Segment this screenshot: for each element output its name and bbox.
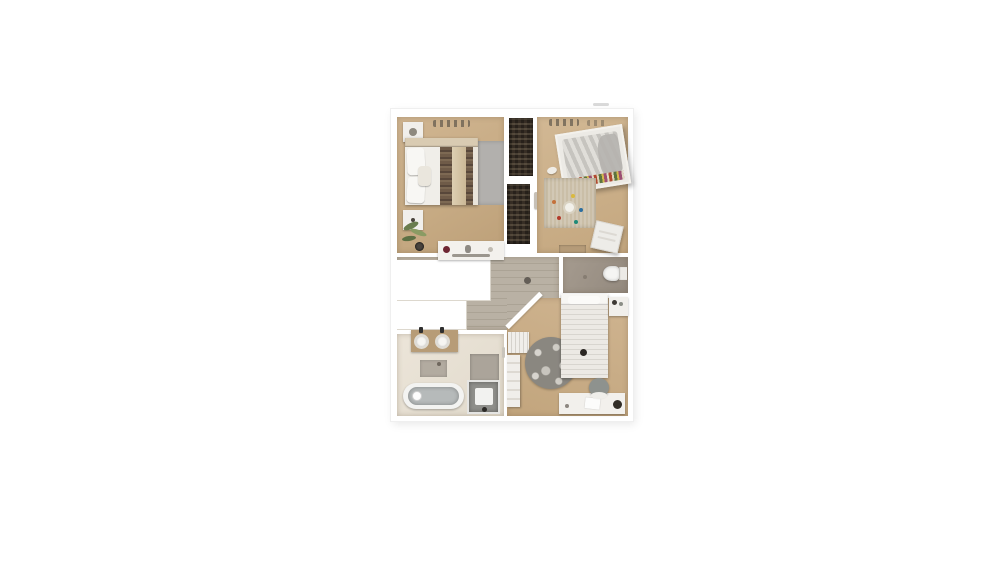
single-bed: [561, 294, 608, 378]
toilet-bowl: [603, 266, 620, 281]
bath-mat: [420, 360, 447, 377]
round-toy: [563, 201, 576, 214]
stair-opening: [397, 260, 491, 301]
bathtub: [403, 383, 464, 409]
desk-chair: [587, 378, 611, 400]
sink-vanity: [411, 330, 458, 352]
sink: [435, 334, 450, 349]
closet-lower: [507, 184, 530, 244]
lamp-icon: [409, 128, 417, 136]
bed-throw-beige: [452, 147, 466, 205]
drawer-line: [452, 254, 490, 257]
floor-plan-image: [391, 109, 633, 421]
bed-pillow: [568, 296, 600, 304]
basket-line: [599, 230, 617, 236]
headboard: [405, 138, 478, 147]
ribbed-duvet: [561, 305, 608, 378]
gray-rug: [475, 141, 504, 205]
sink: [414, 334, 429, 349]
room-bedroom-bottom-right: [507, 298, 628, 416]
leaf: [402, 235, 417, 242]
slipper-pair: [546, 166, 557, 175]
toy-red: [557, 216, 561, 220]
room-bedroom-top-left: [397, 117, 504, 253]
dresser: [438, 241, 504, 260]
red-vase: [443, 246, 450, 253]
bench: [559, 245, 586, 253]
bed-runner-dark: [440, 147, 452, 205]
bathroom-door-handle: [502, 347, 505, 358]
toilet: [603, 266, 627, 281]
shower-side-panel: [470, 354, 499, 381]
plant-pot: [415, 242, 424, 251]
decor-light: [619, 302, 623, 306]
tub-drain: [412, 391, 422, 401]
shower-drain: [482, 407, 487, 412]
desk-lamp: [613, 400, 622, 409]
floor-dot: [583, 275, 587, 279]
chair-backrest: [591, 392, 607, 399]
wall-decor: [587, 120, 607, 126]
stair-opening: [397, 301, 467, 330]
faucet: [440, 327, 444, 333]
play-rug: [544, 178, 596, 228]
gray-decor: [465, 245, 471, 253]
footboard: [473, 147, 478, 205]
faucet: [419, 327, 423, 333]
ceiling-light: [524, 277, 531, 284]
accent-pillow: [418, 166, 431, 186]
double-bed: [405, 138, 478, 205]
basket-line: [598, 236, 616, 242]
storage-basket: [590, 220, 624, 254]
toy-teal: [574, 220, 578, 224]
shower: [467, 380, 500, 414]
desk-item: [565, 404, 569, 408]
room-bathroom: [397, 334, 504, 416]
radiator: [508, 332, 529, 353]
dark-toy: [580, 349, 587, 356]
nightstand: [609, 297, 628, 316]
wall-decor: [549, 119, 579, 126]
small-decor: [488, 247, 493, 252]
page: { "page": { "background_color": "#ffffff…: [0, 0, 1000, 563]
toilet-tank: [619, 267, 627, 280]
decor-dark: [612, 300, 617, 305]
room-wc: [563, 257, 628, 293]
bed-runner-dark: [466, 147, 473, 205]
toy-yellow: [571, 194, 575, 198]
shower-tray: [475, 388, 493, 405]
potted-plant: [401, 221, 429, 251]
toy-blue: [579, 208, 583, 212]
closet-upper: [509, 118, 533, 176]
mat-dot: [437, 362, 441, 366]
toy-orange: [552, 200, 556, 204]
room-bedroom-top-right: [537, 117, 628, 253]
gray-dash-artifact: [593, 103, 609, 106]
wall-decor: [433, 120, 470, 127]
wardrobe-panel: [507, 355, 520, 407]
